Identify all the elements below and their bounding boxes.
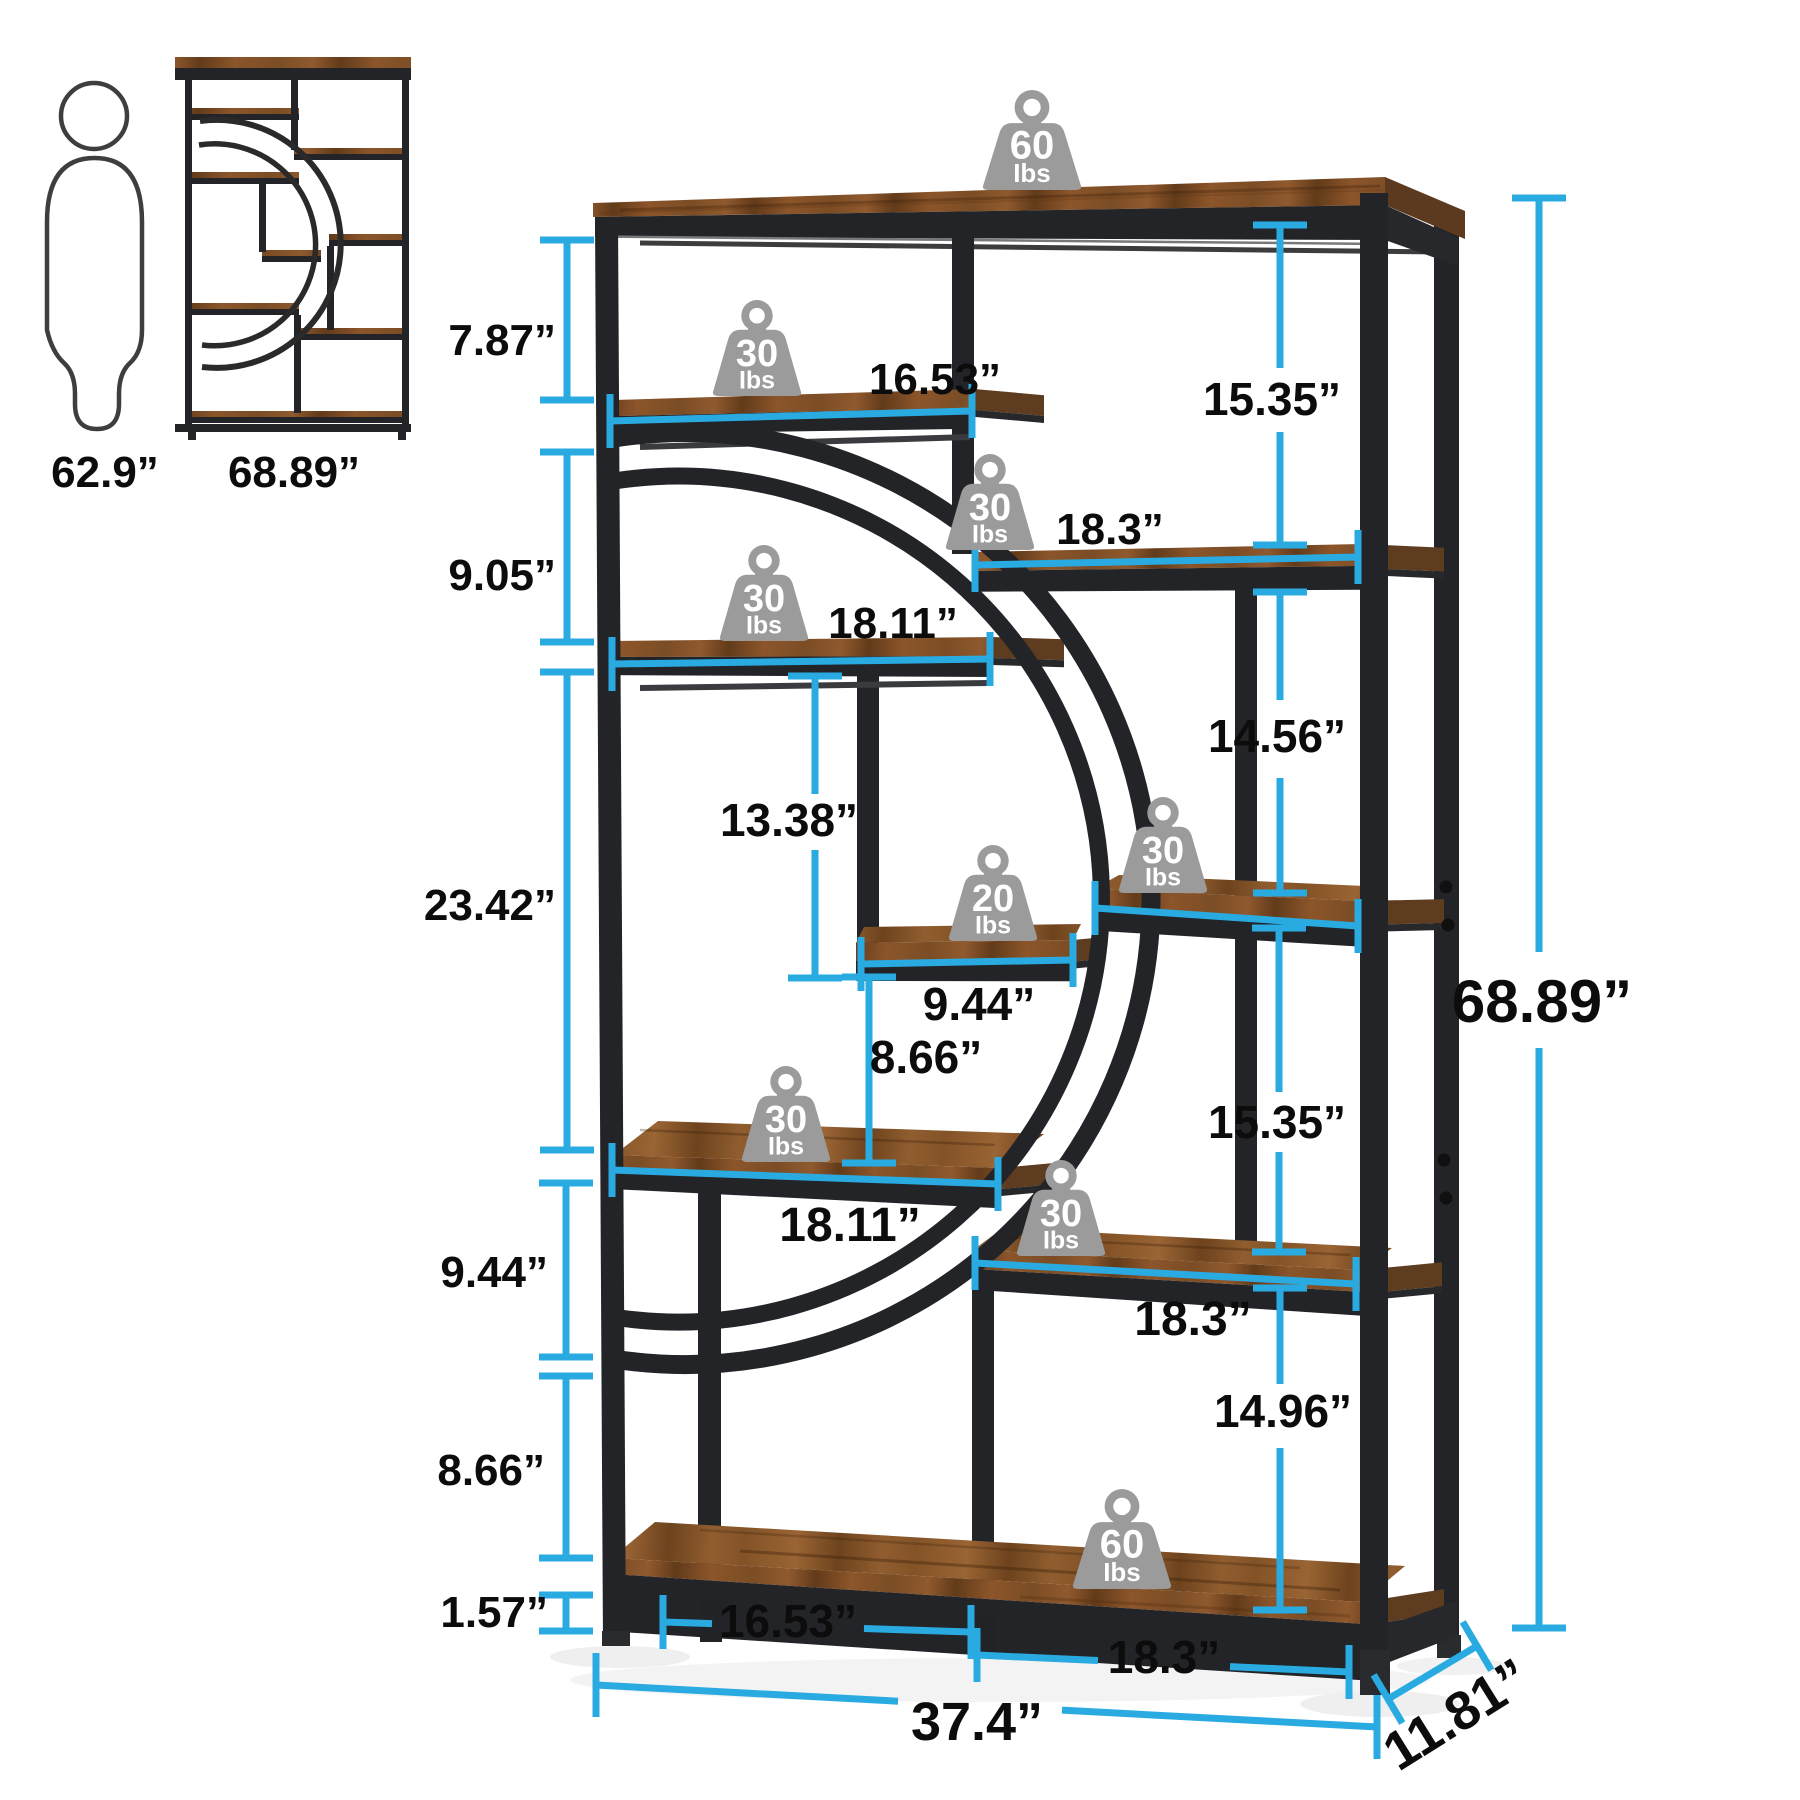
svg-text:9.05”: 9.05”	[448, 551, 556, 600]
svg-text:Ibs: Ibs	[1043, 1226, 1079, 1254]
svg-text:23.42”: 23.42”	[424, 881, 556, 930]
svg-text:18.3”: 18.3”	[1134, 1293, 1251, 1346]
svg-text:15.35”: 15.35”	[1203, 373, 1341, 425]
svg-text:37.4”: 37.4”	[911, 1692, 1043, 1752]
svg-text:Ibs: Ibs	[1145, 863, 1181, 891]
svg-text:14.96”: 14.96”	[1214, 1385, 1352, 1437]
svg-text:16.53”: 16.53”	[719, 1595, 857, 1647]
svg-text:7.87”: 7.87”	[448, 316, 556, 365]
svg-text:Ibs: Ibs	[1103, 1557, 1141, 1587]
svg-text:1.57”: 1.57”	[440, 1588, 548, 1637]
svg-text:14.56”: 14.56”	[1208, 710, 1346, 762]
svg-text:68.89”: 68.89”	[1452, 968, 1632, 1035]
svg-text:15.35”: 15.35”	[1208, 1096, 1346, 1148]
svg-text:9.44”: 9.44”	[923, 978, 1036, 1030]
svg-text:Ibs: Ibs	[1013, 158, 1051, 188]
svg-text:8.66”: 8.66”	[870, 1031, 983, 1083]
svg-text:Ibs: Ibs	[972, 520, 1008, 548]
svg-text:18.11”: 18.11”	[828, 599, 958, 648]
svg-text:68.89”: 68.89”	[228, 448, 360, 497]
svg-text:13.38”: 13.38”	[720, 794, 858, 846]
svg-text:8.66”: 8.66”	[437, 1446, 545, 1495]
svg-text:62.9”: 62.9”	[51, 448, 159, 497]
svg-text:18.11”: 18.11”	[779, 1199, 920, 1252]
svg-text:Ibs: Ibs	[746, 611, 782, 639]
svg-text:Ibs: Ibs	[975, 911, 1011, 939]
svg-text:Ibs: Ibs	[739, 366, 775, 394]
svg-text:Ibs: Ibs	[768, 1132, 804, 1160]
svg-text:18.3”: 18.3”	[1108, 1631, 1221, 1683]
svg-text:16.53”: 16.53”	[869, 355, 1001, 404]
svg-text:18.3”: 18.3”	[1056, 505, 1164, 554]
svg-text:9.44”: 9.44”	[440, 1248, 548, 1297]
